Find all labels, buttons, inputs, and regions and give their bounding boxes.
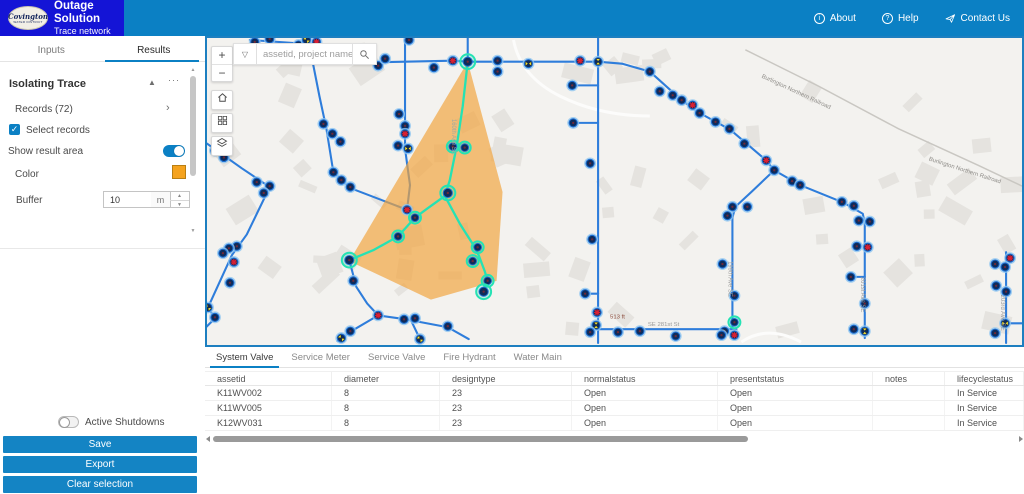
trace-highlight-node[interactable] bbox=[472, 241, 484, 253]
logo-name: Covington bbox=[8, 13, 48, 20]
table-body: K11WV002823OpenOpenIn ServiceK11WV005823… bbox=[205, 386, 1024, 431]
results-panel: Isolating Trace ▲ ··· Records (72) › ✓ S… bbox=[0, 62, 205, 248]
alert-valve-node[interactable] bbox=[862, 241, 874, 253]
map-controls: + − bbox=[211, 46, 233, 159]
column-header-diameter[interactable]: diameter bbox=[332, 372, 440, 385]
table-cell: 8 bbox=[332, 386, 440, 400]
panel-menu-icon[interactable]: ··· bbox=[168, 75, 180, 85]
header-links: i About ? Help Contact Us bbox=[814, 0, 1010, 36]
table-tab-system-valve[interactable]: System Valve bbox=[207, 347, 282, 367]
junction-node[interactable] bbox=[723, 123, 735, 135]
info-icon: i bbox=[814, 13, 825, 24]
table-cell: 23 bbox=[440, 401, 572, 415]
junction-node[interactable] bbox=[670, 330, 682, 342]
table-cell: Open bbox=[572, 386, 718, 400]
map-label: 199th Ave SE bbox=[726, 261, 732, 297]
junction-node[interactable] bbox=[398, 313, 410, 325]
covington-logo: Covington WATER DISTRICT bbox=[8, 6, 48, 30]
scroll-left-icon[interactable] bbox=[206, 436, 210, 442]
alert-valve-node[interactable] bbox=[447, 55, 459, 67]
junction-node[interactable] bbox=[379, 53, 391, 65]
search-input[interactable] bbox=[257, 43, 353, 65]
tab-inputs[interactable]: Inputs bbox=[0, 38, 103, 61]
trace-highlight-node[interactable] bbox=[440, 186, 455, 201]
junction-node[interactable] bbox=[584, 326, 596, 338]
about-label: About bbox=[830, 13, 856, 24]
app-root: Covington WATER DISTRICT Outage Solution… bbox=[0, 0, 1024, 494]
table-cell: 23 bbox=[440, 386, 572, 400]
save-button[interactable]: Save bbox=[3, 436, 197, 453]
junction-node[interactable] bbox=[566, 79, 578, 91]
search-icon bbox=[359, 49, 370, 60]
table-cell: K11WV002 bbox=[205, 386, 332, 400]
valve-node[interactable] bbox=[414, 333, 426, 345]
buffer-stepper[interactable]: ▲ ▼ bbox=[170, 191, 190, 208]
active-shutdowns-label: Active Shutdowns bbox=[85, 417, 165, 428]
table-tab-water-main[interactable]: Water Main bbox=[505, 347, 571, 367]
select-records-label: Select records bbox=[26, 125, 90, 136]
table-cell bbox=[873, 386, 945, 400]
panel-title: Isolating Trace bbox=[9, 78, 86, 90]
junction-node[interactable] bbox=[716, 329, 728, 341]
search-button[interactable] bbox=[353, 43, 377, 65]
app-title: Outage Solution bbox=[54, 0, 124, 26]
table-cell bbox=[873, 416, 945, 430]
trace-highlight-node[interactable] bbox=[342, 253, 357, 268]
junction-node[interactable] bbox=[258, 187, 270, 199]
question-icon: ? bbox=[882, 13, 893, 24]
table-tab-fire-hydrant[interactable]: Fire Hydrant bbox=[434, 347, 504, 367]
column-header-lifecyclestatus[interactable]: lifecyclestatus bbox=[945, 372, 1024, 385]
junction-node[interactable] bbox=[409, 312, 421, 324]
junction-node[interactable] bbox=[347, 275, 359, 287]
junction-node[interactable] bbox=[990, 280, 1002, 292]
trace-highlight-node[interactable] bbox=[467, 255, 479, 267]
table-cell: 23 bbox=[440, 416, 572, 430]
table-cell: Open bbox=[572, 401, 718, 415]
table-cell: 8 bbox=[332, 401, 440, 415]
junction-node[interactable] bbox=[428, 62, 440, 74]
junction-node[interactable] bbox=[851, 240, 863, 252]
paper-plane-icon bbox=[945, 13, 956, 24]
table-cell: Open bbox=[718, 401, 873, 415]
help-label: Help bbox=[898, 13, 919, 24]
contact-us-label: Contact Us bbox=[961, 13, 1010, 24]
home-icon bbox=[217, 92, 228, 103]
map-label: SE 281st St bbox=[648, 322, 680, 328]
chevron-right-icon[interactable]: › bbox=[166, 102, 170, 114]
table-tab-service-meter[interactable]: Service Meter bbox=[282, 347, 359, 367]
map-label: 201st Ave SE bbox=[859, 277, 865, 312]
table-cell bbox=[873, 401, 945, 415]
junction-node[interactable] bbox=[721, 210, 733, 222]
table-header-row: assetiddiameterdesigntypenormalstatuspre… bbox=[205, 371, 1024, 386]
junction-node[interactable] bbox=[209, 311, 221, 323]
layers-button[interactable] bbox=[211, 136, 233, 156]
trace-highlight-node[interactable] bbox=[409, 212, 421, 224]
alert-valve-node[interactable] bbox=[591, 307, 603, 319]
junction-node[interactable] bbox=[586, 233, 598, 245]
table-cell: In Service bbox=[945, 416, 1024, 430]
search-dropdown-icon[interactable]: ▽ bbox=[233, 43, 257, 65]
column-header-normalstatus[interactable]: normalstatus bbox=[572, 372, 718, 385]
table-cell: In Service bbox=[945, 401, 1024, 415]
toggle-knob bbox=[59, 417, 70, 428]
logo-sub: WATER DISTRICT bbox=[13, 20, 42, 24]
active-shutdowns-toggle[interactable] bbox=[58, 416, 79, 428]
scrollbar-thumb[interactable] bbox=[190, 76, 196, 176]
junction-node[interactable] bbox=[579, 288, 591, 300]
column-header-notes[interactable]: notes bbox=[873, 372, 945, 385]
junction-node[interactable] bbox=[334, 136, 346, 148]
alert-valve-node[interactable] bbox=[728, 329, 740, 341]
junction-node[interactable] bbox=[676, 94, 688, 106]
column-header-designtype[interactable]: designtype bbox=[440, 372, 572, 385]
table-cell: K12WV031 bbox=[205, 416, 332, 430]
color-swatch[interactable] bbox=[172, 165, 186, 179]
map-label: 160th Ave SE bbox=[450, 119, 456, 155]
help-link[interactable]: ? Help bbox=[882, 13, 919, 24]
table-cell: Open bbox=[718, 416, 873, 430]
map-label: 203rd Ave SE bbox=[999, 295, 1005, 331]
junction-node[interactable] bbox=[251, 176, 263, 188]
junction-node[interactable] bbox=[999, 261, 1011, 273]
junction-node[interactable] bbox=[741, 201, 753, 213]
alert-valve-node[interactable] bbox=[574, 55, 586, 67]
junction-node[interactable] bbox=[848, 200, 860, 212]
scroll-right-icon[interactable] bbox=[1019, 436, 1023, 442]
junction-node[interactable] bbox=[768, 164, 780, 176]
junction-node[interactable] bbox=[738, 138, 750, 150]
table-cell: 8 bbox=[332, 416, 440, 430]
junction-node[interactable] bbox=[393, 108, 405, 120]
horizontal-scrollbar[interactable] bbox=[205, 434, 1024, 444]
valve-node[interactable] bbox=[522, 58, 534, 70]
table-cell: In Service bbox=[945, 386, 1024, 400]
valve-node[interactable] bbox=[592, 56, 604, 68]
scroll-up-icon[interactable]: ▲ bbox=[189, 66, 197, 74]
junction-node[interactable] bbox=[344, 181, 356, 193]
table-row[interactable]: K11WV002823OpenOpenIn Service bbox=[205, 386, 1024, 401]
junction-node[interactable] bbox=[612, 326, 624, 338]
collapse-chevron-icon[interactable]: ▲ bbox=[148, 78, 156, 87]
records-link[interactable]: Records (72) bbox=[15, 104, 73, 115]
logo-block: Covington WATER DISTRICT Outage Solution… bbox=[0, 0, 124, 36]
layers-icon bbox=[216, 137, 228, 149]
junction-node[interactable] bbox=[492, 55, 504, 67]
scroll-down-icon[interactable]: ▼ bbox=[189, 228, 197, 234]
home-button[interactable] bbox=[211, 90, 233, 110]
junction-node[interactable] bbox=[848, 323, 860, 335]
junction-node[interactable] bbox=[317, 118, 329, 130]
valve-node[interactable] bbox=[402, 143, 414, 155]
map-viewport[interactable]: Burlington Northern RailroadBurlington N… bbox=[205, 36, 1024, 347]
junction-node[interactable] bbox=[853, 215, 865, 227]
trace-highlight-node[interactable] bbox=[460, 54, 475, 69]
junction-node[interactable] bbox=[567, 117, 579, 129]
junction-node[interactable] bbox=[710, 116, 722, 128]
stepper-up-icon[interactable]: ▲ bbox=[170, 192, 189, 201]
junction-node[interactable] bbox=[217, 247, 229, 259]
trace-highlight-node[interactable] bbox=[728, 316, 740, 328]
sidebar-tabs: Inputs Results bbox=[0, 38, 205, 62]
junction-node[interactable] bbox=[224, 277, 236, 289]
zoom-in-button[interactable]: + bbox=[212, 47, 232, 65]
table-tabs: System ValveService MeterService ValveFi… bbox=[205, 347, 1024, 368]
map-canvas[interactable]: Burlington Northern RailroadBurlington N… bbox=[207, 38, 1022, 345]
stepper-down-icon[interactable]: ▼ bbox=[170, 201, 189, 209]
junction-node[interactable] bbox=[492, 66, 504, 78]
junction-node[interactable] bbox=[794, 179, 806, 191]
panel-divider bbox=[0, 248, 205, 249]
junction-node[interactable] bbox=[634, 325, 646, 337]
map-search-bar: ▽ bbox=[233, 43, 377, 65]
grid-icon bbox=[217, 115, 228, 126]
table-cell: Open bbox=[718, 386, 873, 400]
sidebar: Inputs Results Isolating Trace ▲ ··· Rec… bbox=[0, 36, 205, 494]
app-titles: Outage Solution Trace network bbox=[54, 0, 124, 37]
show-result-area-label: Show result area bbox=[8, 146, 83, 157]
junction-node[interactable] bbox=[442, 320, 454, 332]
table-row[interactable]: K11WV005823OpenOpenIn Service bbox=[205, 401, 1024, 416]
show-result-area-toggle[interactable] bbox=[163, 145, 185, 157]
alert-valve-node[interactable] bbox=[372, 309, 384, 321]
alert-valve-node[interactable] bbox=[228, 256, 240, 268]
map-label: 513 ft bbox=[610, 314, 625, 320]
junction-node[interactable] bbox=[644, 66, 656, 78]
export-button[interactable]: Export bbox=[3, 456, 197, 473]
clear-selection-button[interactable]: Clear selection bbox=[3, 476, 197, 493]
column-header-assetid[interactable]: assetid bbox=[205, 372, 332, 385]
basemap-button[interactable] bbox=[211, 113, 233, 133]
table-cell: Open bbox=[572, 416, 718, 430]
alert-valve-node[interactable] bbox=[399, 128, 411, 140]
about-link[interactable]: i About bbox=[814, 13, 856, 24]
trace-highlight-node[interactable] bbox=[476, 284, 491, 299]
tab-results[interactable]: Results bbox=[103, 38, 206, 61]
contact-us-link[interactable]: Contact Us bbox=[945, 13, 1010, 24]
junction-node[interactable] bbox=[654, 85, 666, 97]
junction-node[interactable] bbox=[694, 107, 706, 119]
valve-node[interactable] bbox=[859, 325, 871, 337]
buffer-unit: m bbox=[151, 191, 171, 208]
valve-node[interactable] bbox=[335, 332, 347, 344]
junction-node[interactable] bbox=[836, 196, 848, 208]
zoom-out-button[interactable]: − bbox=[212, 65, 232, 83]
buffer-label: Buffer bbox=[16, 195, 43, 206]
table-row[interactable]: K12WV031823OpenOpenIn Service bbox=[205, 416, 1024, 431]
column-header-presentstatus[interactable]: presentstatus bbox=[718, 372, 873, 385]
buffer-input[interactable] bbox=[103, 191, 152, 208]
select-records-checkbox[interactable]: ✓ bbox=[9, 124, 20, 135]
trace-highlight-node[interactable] bbox=[459, 142, 471, 154]
table-tab-service-valve[interactable]: Service Valve bbox=[359, 347, 434, 367]
color-label: Color bbox=[15, 169, 39, 180]
junction-node[interactable] bbox=[584, 157, 596, 169]
app-header: Covington WATER DISTRICT Outage Solution… bbox=[0, 0, 1024, 36]
junction-node[interactable] bbox=[864, 216, 876, 228]
panel-scrollbar[interactable]: ▲ bbox=[189, 66, 197, 244]
trace-highlight-node[interactable] bbox=[392, 230, 404, 242]
attribute-table: System ValveService MeterService ValveFi… bbox=[205, 347, 1024, 494]
toggle-knob bbox=[174, 146, 184, 156]
junction-node[interactable] bbox=[845, 271, 857, 283]
table-cell: K11WV005 bbox=[205, 401, 332, 415]
app-subtitle: Trace network bbox=[54, 26, 124, 37]
scrollbar-thumb[interactable] bbox=[213, 436, 748, 442]
alert-valve-node[interactable] bbox=[760, 154, 772, 166]
